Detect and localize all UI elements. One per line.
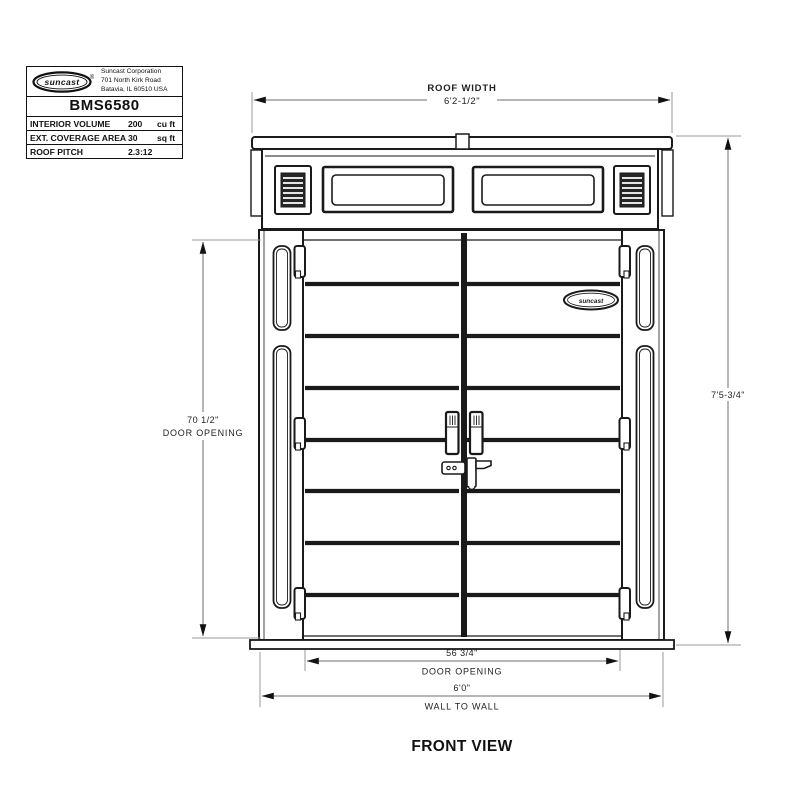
roof-cap-left (252, 137, 458, 149)
door-width-label: DOOR OPENING (422, 667, 503, 677)
roof-cap-joint (456, 134, 469, 149)
shed-front-view-drawing: suncast ROOF WIDTH 6'2-1/2" (0, 0, 800, 800)
suncast-door-badge: suncast (564, 291, 618, 310)
door-width-value: 56 3/4" (446, 648, 478, 658)
roof-trim-right (662, 150, 673, 216)
wall-to-wall-label: WALL TO WALL (425, 702, 500, 712)
roof-vent-right (614, 166, 650, 214)
dim-overall-height: 7'5-3/4" (676, 136, 755, 645)
spec-sheet-page: suncast ® Suncast Corporation 701 North … (0, 0, 800, 800)
view-label: FRONT VIEW (411, 738, 512, 755)
overall-height-value: 7'5-3/4" (711, 390, 745, 400)
roof-vent-left (275, 166, 311, 214)
door-height-label: DOOR OPENING (163, 428, 244, 438)
roof-width-value: 6'2-1/2" (444, 96, 480, 107)
wall-to-wall-value: 6'0" (454, 683, 471, 693)
roof-window-left (323, 167, 453, 212)
roof-trim-left (251, 150, 262, 216)
roof-cap-right (466, 137, 672, 149)
door-badge-text: suncast (579, 298, 604, 305)
dim-door-opening-height: 70 1/2" DOOR OPENING (161, 240, 261, 638)
roof-window-right (473, 167, 603, 212)
wall-slots-right (637, 246, 654, 608)
dim-door-opening-width: 56 3/4" DOOR OPENING (305, 648, 620, 677)
door-height-value: 70 1/2" (187, 415, 219, 425)
roof-width-label: ROOF WIDTH (427, 83, 496, 94)
dim-roof-width: ROOF WIDTH 6'2-1/2" (252, 83, 672, 133)
roof (251, 134, 673, 229)
wall-slots-left (274, 246, 291, 608)
door-center-divider (461, 233, 467, 637)
